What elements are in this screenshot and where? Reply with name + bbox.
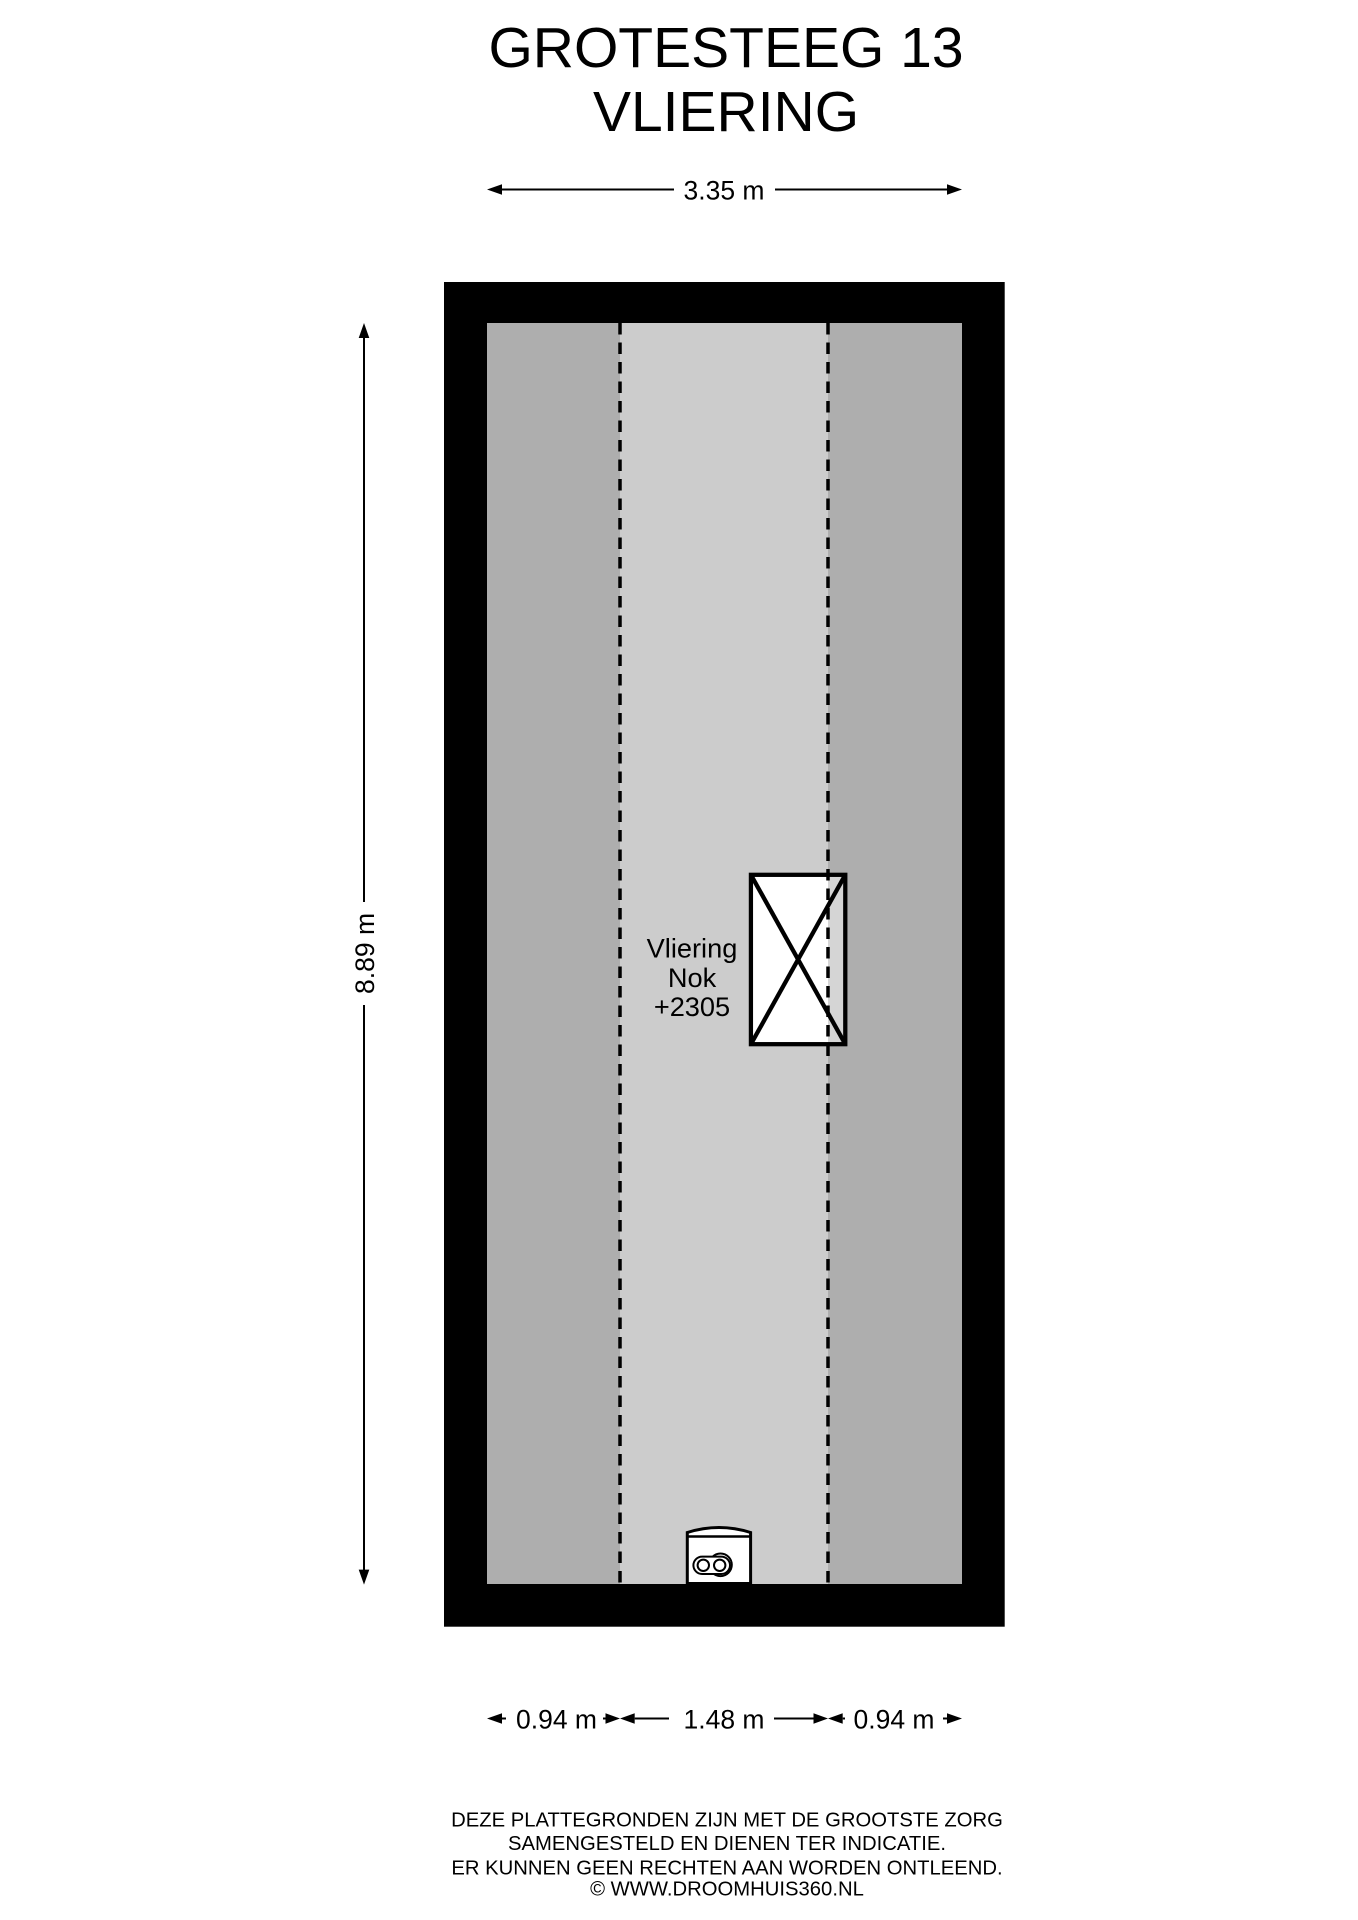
svg-text:0.94 m: 0.94 m	[853, 1704, 934, 1734]
svg-text:VLIERING: VLIERING	[593, 80, 859, 144]
svg-text:SAMENGESTELD EN DIENEN TER IND: SAMENGESTELD EN DIENEN TER INDICATIE.	[508, 1833, 946, 1855]
svg-text:DEZE PLATTEGRONDEN ZIJN MET DE: DEZE PLATTEGRONDEN ZIJN MET DE GROOTSTE …	[451, 1810, 1003, 1832]
svg-text:0.94 m: 0.94 m	[516, 1704, 597, 1734]
svg-text:GROTESTEEG 13: GROTESTEEG 13	[488, 16, 963, 80]
svg-text:© WWW.DROOMHUIS360.NL: © WWW.DROOMHUIS360.NL	[590, 1878, 864, 1900]
svg-text:3.35 m: 3.35 m	[683, 175, 764, 205]
svg-text:8.89 m: 8.89 m	[350, 913, 380, 994]
svg-text:Vliering: Vliering	[647, 933, 738, 964]
svg-text:ER KUNNEN GEEN RECHTEN AAN WOR: ER KUNNEN GEEN RECHTEN AAN WORDEN ONTLEE…	[451, 1857, 1002, 1879]
svg-text:1.48 m: 1.48 m	[683, 1704, 764, 1734]
svg-text:+2305: +2305	[654, 991, 730, 1022]
svg-text:Nok: Nok	[668, 962, 717, 993]
